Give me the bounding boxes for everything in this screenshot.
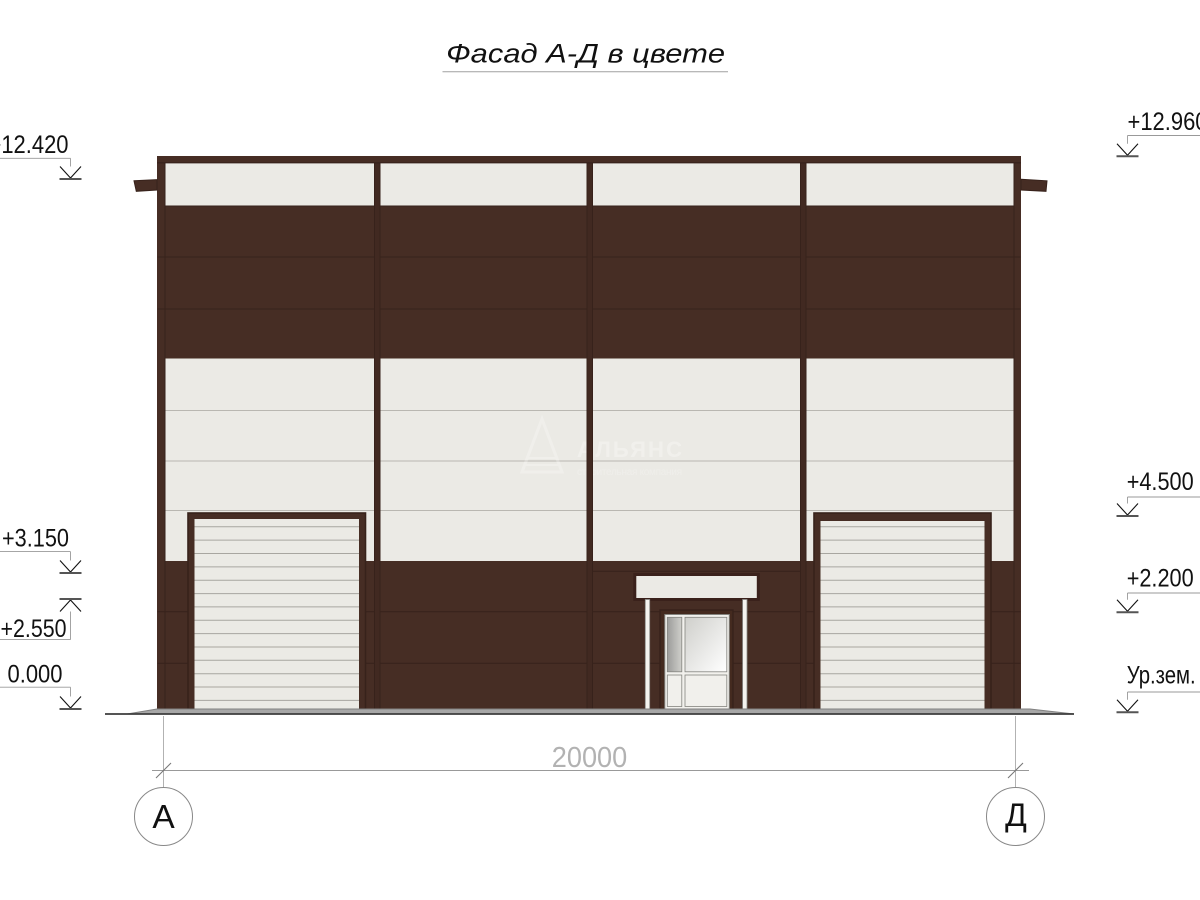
svg-text:Д: Д <box>1005 797 1027 833</box>
svg-text:+4.500: +4.500 <box>1127 468 1194 496</box>
svg-text:Фасад А-Д в цвете: Фасад А-Д в цвете <box>446 39 725 69</box>
svg-text:+12.960: +12.960 <box>1128 108 1200 136</box>
svg-text:+2.200: +2.200 <box>1127 565 1194 593</box>
svg-text:+12.420: +12.420 <box>0 131 69 159</box>
svg-text:А: А <box>152 799 175 836</box>
svg-text:Ур.зем.: Ур.зем. <box>1127 661 1196 689</box>
svg-text:0.000: 0.000 <box>8 660 63 688</box>
svg-text:+2.550: +2.550 <box>1 615 67 643</box>
svg-text:+3.150: +3.150 <box>2 525 69 553</box>
svg-text:20000: 20000 <box>552 742 628 774</box>
